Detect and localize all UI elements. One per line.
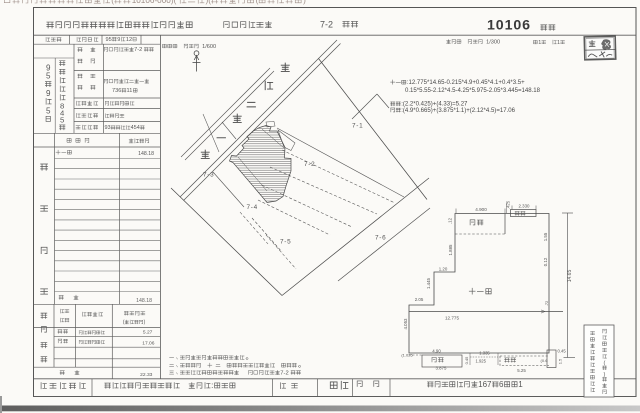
svg-text:0.15*5.55-2.12*4.5-4.25*5.975-: 0.15*5.55-2.12*4.5-4.25*5.975-2.05*3.445… xyxy=(405,88,541,94)
svg-text:1/300: 1/300 xyxy=(486,39,500,45)
svg-text:6: 6 xyxy=(499,380,504,389)
svg-text:1.20: 1.20 xyxy=(439,266,448,271)
svg-text:5: 5 xyxy=(60,115,64,124)
svg-text:167: 167 xyxy=(478,380,492,389)
svg-text:4.90: 4.90 xyxy=(432,348,441,353)
svg-text:11: 11 xyxy=(127,88,133,94)
svg-text:148.18: 148.18 xyxy=(136,298,152,304)
svg-text:5.27: 5.27 xyxy=(143,330,153,336)
svg-text:(: ( xyxy=(111,0,114,5)
svg-text:1: 1 xyxy=(557,40,560,46)
svg-text:12: 12 xyxy=(126,37,132,43)
svg-text:4.053: 4.053 xyxy=(403,318,408,330)
svg-text:1: 1 xyxy=(518,380,523,389)
svg-text:9: 9 xyxy=(117,37,120,43)
svg-text::(2.2*0.425)+(4.33)=5.27: :(2.2*0.425)+(4.33)=5.27 xyxy=(401,102,468,108)
svg-text:0.45: 0.45 xyxy=(464,356,469,365)
svg-text:95: 95 xyxy=(106,37,112,43)
svg-text:7-2: 7-2 xyxy=(280,370,288,376)
svg-text:10106: 10106 xyxy=(487,18,531,34)
svg-text:): ) xyxy=(604,372,606,378)
svg-text::12.775*14.65-0.215*4.9+0.45*4: :12.775*14.65-0.215*4.9+0.45*4.1+0.4*3.5… xyxy=(407,80,525,86)
svg-text:12.775: 12.775 xyxy=(445,315,459,320)
svg-text:17.06: 17.06 xyxy=(142,341,155,347)
svg-text:): ) xyxy=(303,0,306,5)
svg-text:736: 736 xyxy=(112,88,121,94)
svg-text:10106-000)(: 10106-000)( xyxy=(132,0,177,5)
svg-text:454: 454 xyxy=(131,125,140,131)
svg-text:4.900: 4.900 xyxy=(475,207,487,212)
svg-text:1.335: 1.335 xyxy=(479,350,490,355)
svg-text:7-2: 7-2 xyxy=(320,20,333,30)
svg-text:5: 5 xyxy=(46,106,51,115)
svg-text:14.65: 14.65 xyxy=(567,270,573,283)
svg-text:0.12: 0.12 xyxy=(543,257,548,266)
svg-text:.425: .425 xyxy=(506,200,511,209)
svg-text:7-4: 7-4 xyxy=(247,204,258,211)
svg-text:1.5: 1.5 xyxy=(558,358,563,364)
svg-text:1.445: 1.445 xyxy=(426,277,431,289)
svg-text::: : xyxy=(211,381,213,390)
svg-text:(: ( xyxy=(123,320,125,326)
svg-text:3.875: 3.875 xyxy=(436,365,448,370)
svg-text:0.45: 0.45 xyxy=(558,348,567,353)
svg-text:5.25: 5.25 xyxy=(517,368,526,373)
svg-text:(: ( xyxy=(256,0,259,5)
svg-text:1/600: 1/600 xyxy=(202,44,216,50)
svg-text:7-2: 7-2 xyxy=(304,161,315,168)
svg-text:7-5: 7-5 xyxy=(280,238,291,245)
svg-text:)(: )( xyxy=(206,0,212,5)
svg-text:(1.025: (1.025 xyxy=(401,353,413,358)
svg-text::(4.9*0.665)+(3.875*1.1)+(2.12: :(4.9*0.665)+(3.875*1.1)+(2.12*4.5)=17.0… xyxy=(401,108,515,114)
svg-text:7-6: 7-6 xyxy=(375,234,386,241)
svg-text:9: 9 xyxy=(46,89,51,98)
svg-text:1.885: 1.885 xyxy=(448,244,453,256)
svg-text:93: 93 xyxy=(105,125,111,131)
svg-text:1.55: 1.55 xyxy=(543,232,548,241)
svg-text:): ) xyxy=(144,320,146,326)
svg-text:.72: .72 xyxy=(544,300,549,306)
svg-text:.12: .12 xyxy=(448,217,453,224)
svg-text:1: 1 xyxy=(538,40,541,46)
svg-text:1.925: 1.925 xyxy=(475,359,486,364)
svg-text:(0.6: (0.6 xyxy=(541,358,549,363)
svg-text:7-2: 7-2 xyxy=(134,47,142,53)
svg-text:5: 5 xyxy=(46,71,51,80)
svg-text:7-3: 7-3 xyxy=(203,171,214,178)
svg-text:2.330: 2.330 xyxy=(519,204,531,209)
svg-text:22.33: 22.33 xyxy=(140,372,153,378)
svg-text:148.18: 148.18 xyxy=(138,151,154,157)
svg-text:(: ( xyxy=(604,360,606,366)
svg-text:2.05: 2.05 xyxy=(415,297,424,302)
svg-text:7-1: 7-1 xyxy=(352,122,363,129)
